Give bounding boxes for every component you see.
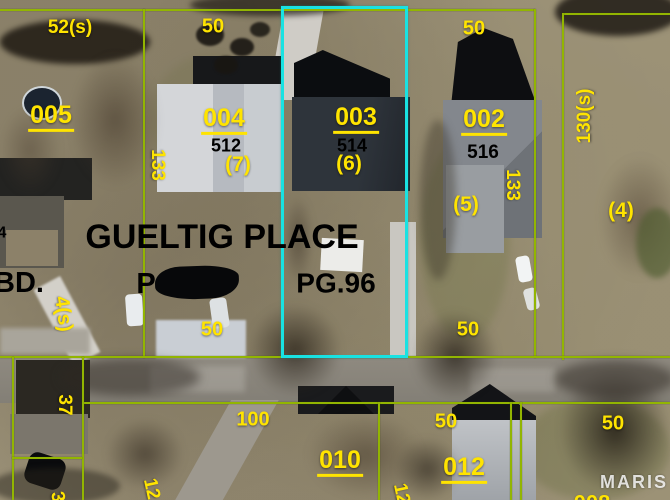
address-partial-4: 4 <box>0 226 6 243</box>
alt-lot-6: (6) <box>336 153 362 175</box>
lot-number-010: 010 <box>317 447 363 477</box>
dim-52s-lot005: 52(s) <box>48 18 92 38</box>
lot-number-012: 012 <box>441 454 487 484</box>
dim-50-rear-lot004: 50 <box>202 17 224 38</box>
alt-lot-7: (7) <box>225 154 251 176</box>
lot-number-003: 003 <box>333 104 379 134</box>
subdivision-name: GUELTIG PLACE <box>85 220 358 256</box>
maris-watermark: MARIS <box>600 473 668 492</box>
lot-number-004: 004 <box>201 105 247 135</box>
label-plat-page: PG.96 <box>296 268 375 297</box>
label-plat-fragment: P <box>136 269 155 299</box>
dim-50-southeast: 50 <box>602 414 624 435</box>
address-516: 516 <box>467 143 499 163</box>
dim-3-partial: 3 <box>46 490 67 500</box>
parcel-map-viewport[interactable]: 52(s)5050005004512(7)003514(6)002516(5)1… <box>0 0 670 500</box>
dim-12-west: 12 <box>139 477 163 500</box>
lot-number-partial: 008 <box>574 491 611 500</box>
dim-50-lot012: 50 <box>435 412 457 433</box>
dim-133-east: 133 <box>502 169 522 201</box>
label-bd-fragment: BD. <box>0 268 44 298</box>
dim-12-center: 12 <box>389 482 413 500</box>
dim-37: 37 <box>54 394 74 415</box>
dim-50-rear-lot002: 50 <box>463 19 485 40</box>
dim-50-front-lot002: 50 <box>457 320 479 341</box>
alt-lot-5: (5) <box>453 194 479 216</box>
dim-100: 100 <box>236 410 269 431</box>
dim-4s: 4(s) <box>50 295 76 333</box>
lot-number-002: 002 <box>461 106 507 136</box>
dim-50-front-lot004: 50 <box>201 320 223 341</box>
lot-number-005: 005 <box>28 102 74 132</box>
alt-lot-4: (4) <box>608 200 634 222</box>
dim-133-west: 133 <box>147 149 167 181</box>
dim-130s: 130(s) <box>575 89 595 144</box>
map-label-layer: 52(s)5050005004512(7)003514(6)002516(5)1… <box>0 0 670 500</box>
